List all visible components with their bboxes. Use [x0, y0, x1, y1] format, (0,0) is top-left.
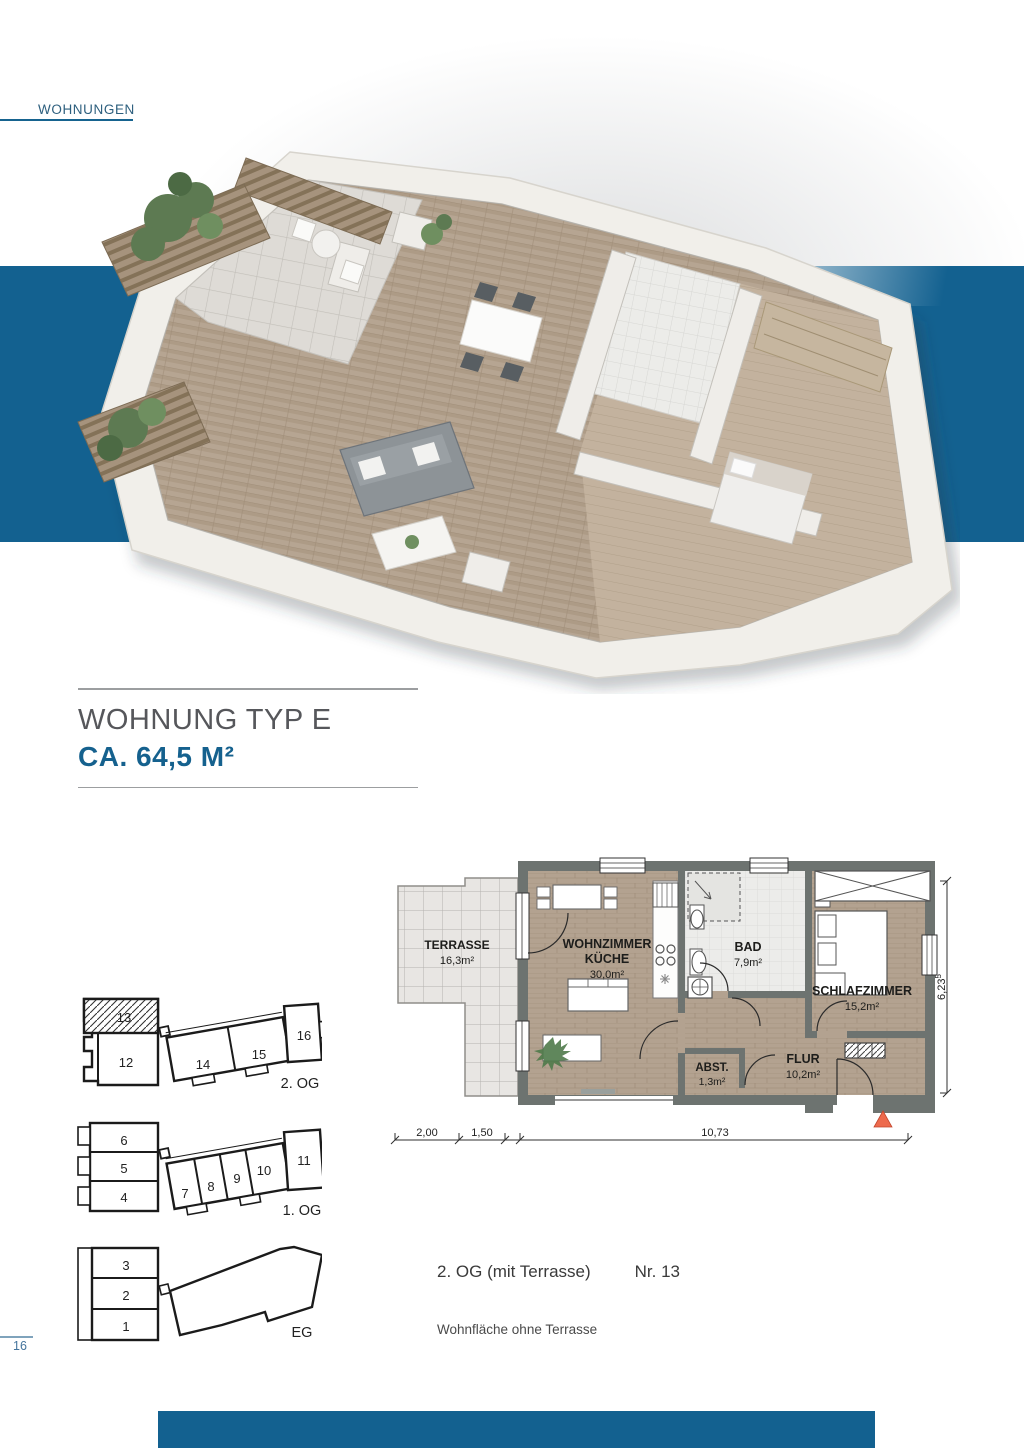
detail-unit-number: Nr. 13 [635, 1262, 680, 1281]
unit-label-8: 8 [207, 1179, 214, 1194]
details-block: 2. OG (mit Terrasse)Nr. 13 Wohnfläche oh… [437, 1262, 917, 1337]
title-rule-top [78, 688, 418, 690]
title-rule-bottom [78, 787, 418, 789]
page-number-rule [0, 1336, 33, 1338]
unit-label-16: 16 [297, 1028, 311, 1043]
unit-label-13: 13 [117, 1010, 131, 1025]
unit-label-1: 1 [122, 1319, 129, 1334]
unit-label-15: 15 [252, 1047, 266, 1062]
room-area-wohnzimmer: 30,0m² [590, 969, 625, 981]
room-label-wohnzimmer: WOHNZIMMER [563, 937, 652, 951]
floorplan-dining-table [537, 885, 617, 909]
unit-label-11: 11 [297, 1153, 311, 1168]
dim-label-1: 2,00 [416, 1127, 437, 1139]
dimension-bottom-labels: 2,00 1,50 10,73 [416, 1127, 728, 1139]
room-area-bad: 7,9m² [734, 957, 762, 969]
dim-label-height: 6,235 [934, 974, 948, 1000]
floor-label-1og: 1. OG [283, 1203, 322, 1219]
room-label-schlafzimmer: SCHLAFZIMMER [812, 984, 912, 998]
render-table-plant [405, 535, 419, 549]
section-header-label: WOHNUNGEN [38, 102, 135, 117]
room-label-abst: ABST. [695, 1062, 728, 1074]
dim-label-2: 1,50 [471, 1127, 492, 1139]
overview-floor-eg [78, 1247, 322, 1340]
apartment-3d-render [40, 122, 960, 694]
room-area-schlafzimmer: 15,2m² [845, 1001, 880, 1013]
unit-label-6: 6 [120, 1133, 127, 1148]
floorplan-flur-wardrobe [845, 1043, 885, 1058]
unit-label-14: 14 [196, 1057, 210, 1072]
page-subtitle-area: CA. 64,5 M² [78, 741, 418, 773]
page-number: 16 [13, 1339, 27, 1353]
entrance-triangle [874, 1111, 892, 1127]
room-label-bad: BAD [734, 940, 761, 954]
unit-label-7: 7 [181, 1186, 188, 1201]
floorplan-doormat [581, 1089, 615, 1094]
brochure-page: { "header": { "label": "WOHNUNGEN" }, "t… [0, 0, 1024, 1448]
unit-label-12: 12 [119, 1055, 133, 1070]
section-header: WOHNUNGEN [38, 101, 135, 119]
floorplan-2d: TERRASSE 16,3m² WOHNZIMMER KÜCHE 30,0m² … [385, 853, 963, 1153]
detail-floor: 2. OG (mit Terrasse) [437, 1262, 591, 1281]
floorplan-kitchen [653, 881, 678, 998]
title-block: WOHNUNG TYP E CA. 64,5 M² [78, 688, 418, 788]
section-header-rule [0, 119, 133, 121]
room-label-terrasse: TERRASSE [424, 938, 489, 952]
dim-label-3: 10,73 [701, 1127, 729, 1139]
footer-bar [158, 1411, 875, 1448]
floorplan-wardrobe [815, 871, 930, 901]
unit-label-5: 5 [120, 1161, 127, 1176]
page-title: WOHNUNG TYP E [78, 704, 418, 737]
unit-label-4: 4 [120, 1190, 127, 1205]
unit-label-10: 10 [257, 1163, 271, 1178]
unit-label-3: 3 [122, 1258, 129, 1273]
overview-plans: 13 12 14 15 16 2. OG 6 5 4 7 8 9 10 [62, 985, 322, 1365]
floor-label-2og: 2. OG [281, 1076, 320, 1092]
floorplan-terrace [398, 878, 518, 1096]
floorplan-sink-icon [660, 974, 670, 984]
unit-label-9: 9 [233, 1171, 240, 1186]
unit-label-2: 2 [122, 1288, 129, 1303]
floor-label-eg: EG [292, 1325, 313, 1341]
room-area-terrasse: 16,3m² [440, 955, 475, 967]
room-label-kueche: KÜCHE [585, 951, 629, 966]
room-area-abst: 1,3m² [699, 1076, 726, 1088]
detail-note: Wohnfläche ohne Terrasse [437, 1322, 917, 1337]
room-label-flur: FLUR [786, 1052, 819, 1066]
room-area-flur: 10,2m² [786, 1069, 821, 1081]
dimension-bottom [391, 1133, 912, 1144]
